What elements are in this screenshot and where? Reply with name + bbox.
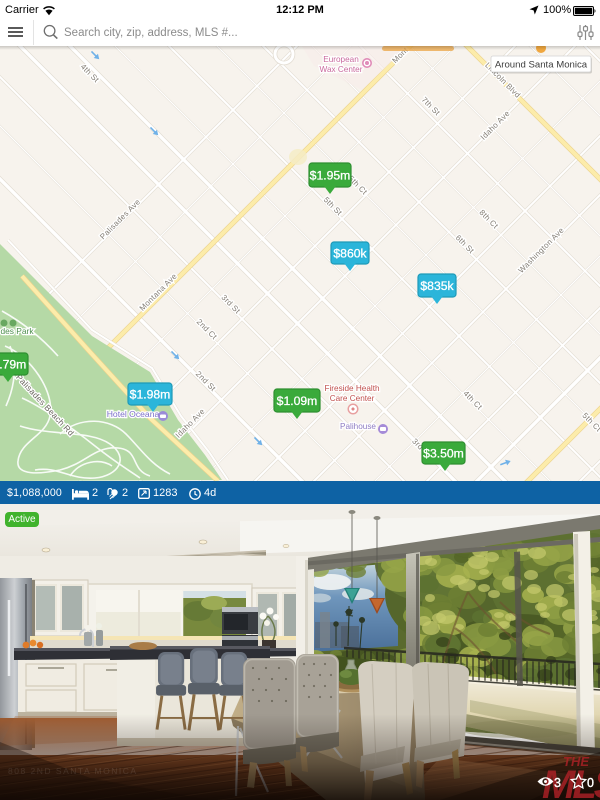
svg-text:$835k: $835k: [420, 279, 454, 293]
svg-text:Fireside Health: Fireside Health: [324, 384, 380, 393]
svg-text:Care Center: Care Center: [330, 394, 375, 403]
svg-text:$3.50m: $3.50m: [423, 446, 464, 460]
svg-text:Hotel Oceana: Hotel Oceana: [107, 409, 160, 419]
svg-text:Wax Center: Wax Center: [320, 65, 363, 74]
svg-text:Around Santa Monica: Around Santa Monica: [495, 60, 588, 71]
svg-text:des Park: des Park: [0, 326, 34, 336]
svg-text:European: European: [323, 55, 359, 64]
svg-text:$860k: $860k: [333, 246, 367, 260]
svg-text:Palihouse: Palihouse: [340, 422, 376, 431]
svg-text:$1.95m: $1.95m: [310, 168, 351, 182]
svg-text:$1.79m: $1.79m: [0, 357, 26, 371]
svg-text:3: 3: [554, 776, 561, 790]
svg-text:$1.98m: $1.98m: [130, 387, 171, 401]
svg-text:$1.09m: $1.09m: [277, 394, 318, 408]
svg-text:808 2ND SANTA MONICA: 808 2ND SANTA MONICA: [8, 766, 138, 776]
svg-text:0: 0: [587, 776, 594, 790]
